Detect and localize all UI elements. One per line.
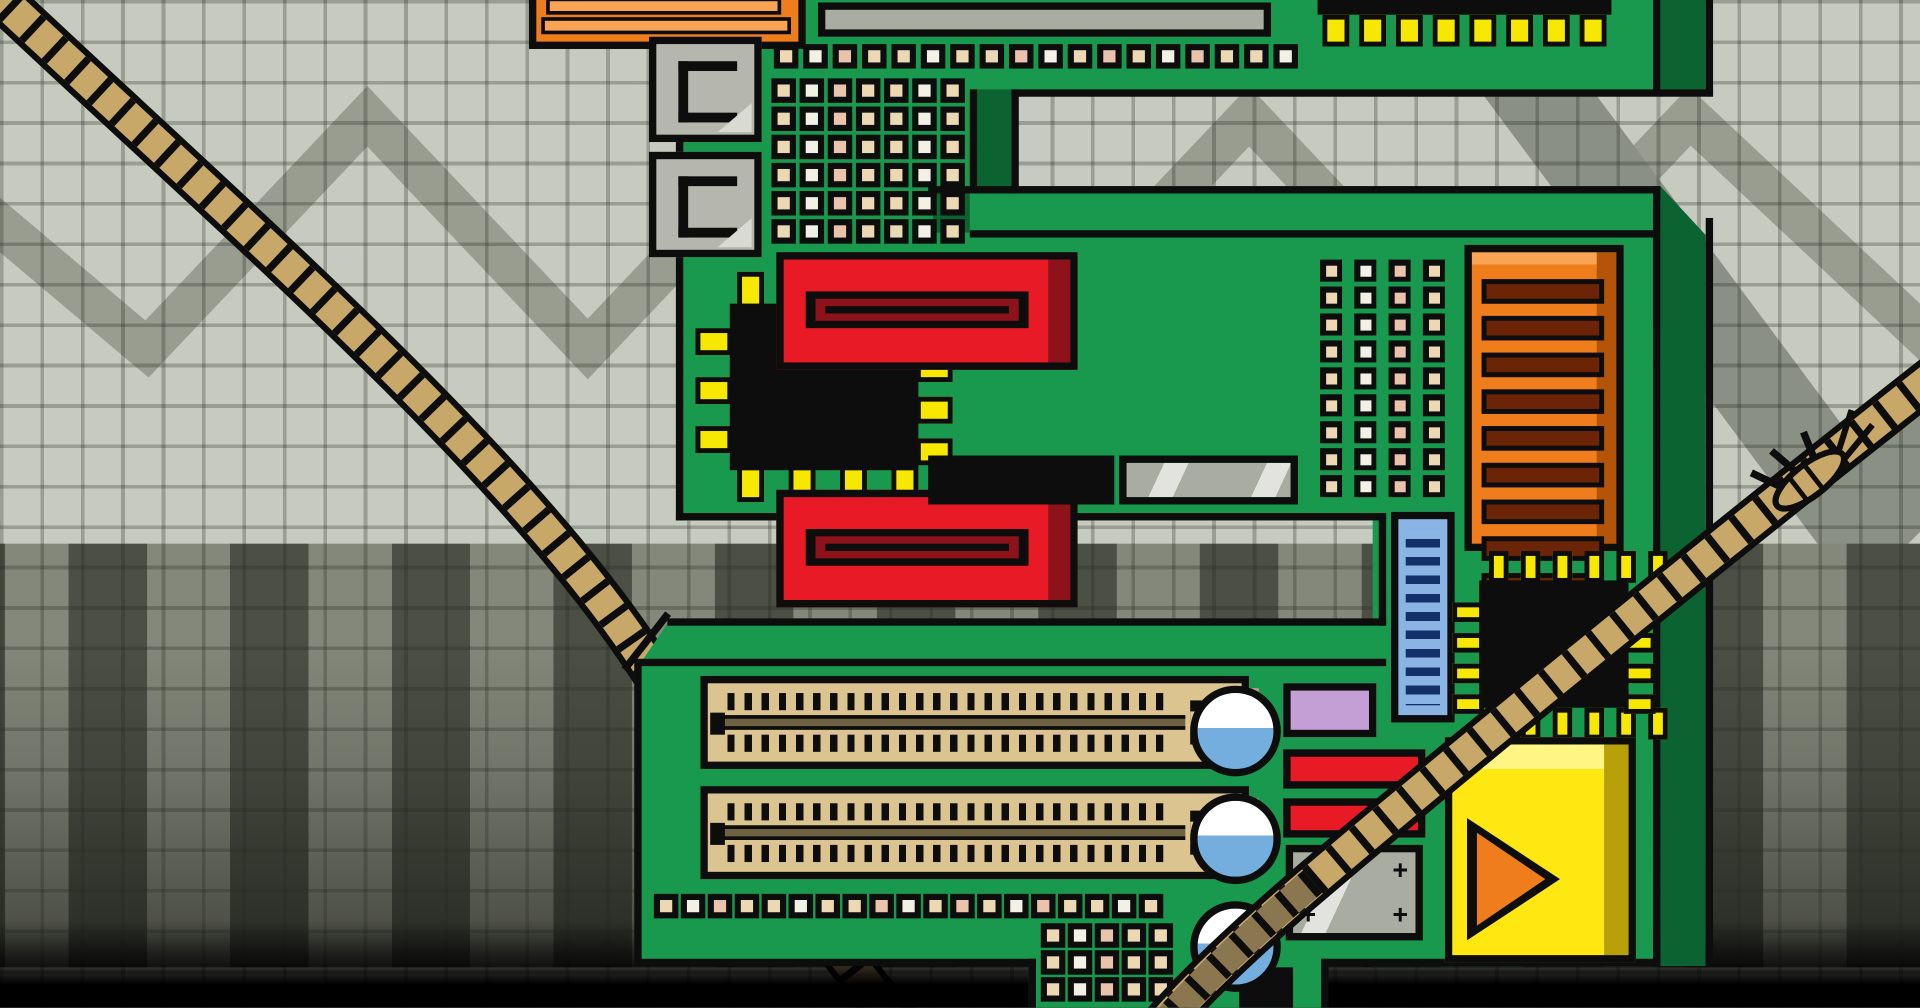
right-rope-cable [0, 0, 1920, 1008]
illustration-stage: + + + + [0, 0, 1920, 1008]
